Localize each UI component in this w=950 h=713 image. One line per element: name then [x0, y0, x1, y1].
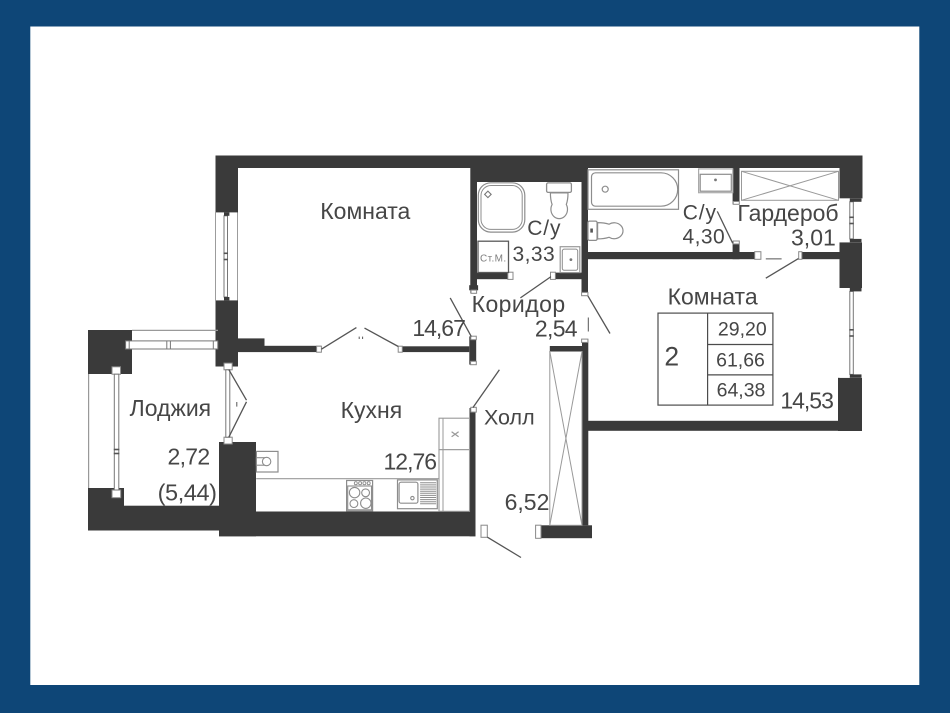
- svg-text:Комната: Комната: [668, 283, 758, 309]
- svg-text:4,30: 4,30: [683, 226, 725, 249]
- svg-text:29,20: 29,20: [718, 318, 767, 340]
- svg-text:2,72: 2,72: [168, 444, 210, 470]
- svg-text:С/у: С/у: [683, 202, 717, 225]
- svg-text:(5,44): (5,44): [158, 480, 217, 506]
- svg-text:Коридор: Коридор: [472, 291, 566, 317]
- svg-text:Кухня: Кухня: [341, 397, 403, 423]
- svg-text:6,52: 6,52: [505, 489, 550, 515]
- svg-text:3,01: 3,01: [791, 225, 836, 251]
- svg-text:3,33: 3,33: [513, 243, 555, 266]
- svg-text:61,66: 61,66: [716, 350, 765, 372]
- svg-text:Комната: Комната: [320, 198, 410, 224]
- svg-text:64,38: 64,38: [717, 380, 766, 402]
- svg-text:14,53: 14,53: [780, 388, 833, 414]
- svg-text:Холл: Холл: [484, 406, 535, 430]
- svg-text:2,54: 2,54: [535, 316, 578, 342]
- svg-text:Лоджия: Лоджия: [130, 395, 212, 421]
- svg-text:2: 2: [664, 341, 679, 371]
- svg-text:14,67: 14,67: [412, 315, 465, 341]
- svg-text:С/у: С/у: [527, 217, 561, 240]
- svg-text:Ст.М.: Ст.М.: [480, 253, 507, 264]
- svg-text:12,76: 12,76: [384, 448, 437, 474]
- svg-text:Гардероб: Гардероб: [737, 200, 838, 226]
